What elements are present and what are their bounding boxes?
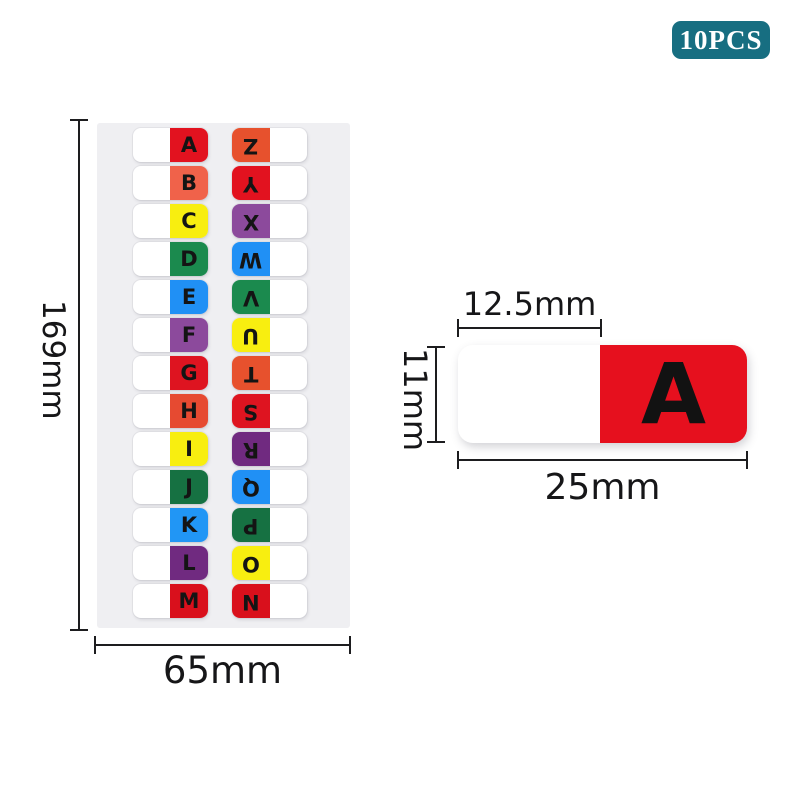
tab-letter: Z — [243, 135, 258, 156]
tab-letter: C — [181, 211, 196, 232]
sheet-row: FU — [97, 318, 350, 352]
tab-colored-half: T — [232, 356, 270, 390]
tab-colored-half: S — [232, 394, 270, 428]
tab-colored-half: K — [170, 508, 208, 542]
tab-sticker-u: U — [232, 318, 307, 352]
sticker-sheet: AZBYCXDWEVFUGTHSIRJQKPLOMN — [97, 123, 350, 628]
tab-letter: U — [242, 325, 259, 346]
sheet-row: KP — [97, 508, 350, 542]
tab-letter: B — [181, 173, 197, 194]
tab-sticker-p: P — [232, 508, 307, 542]
tab-colored-half: A — [600, 345, 747, 443]
tab-letter: N — [242, 591, 260, 612]
sheet-width-label: 65mm — [95, 652, 350, 689]
sheet-row: AZ — [97, 128, 350, 162]
tab-height-dim-line — [435, 347, 437, 442]
tab-letter: Q — [242, 477, 260, 498]
tab-colored-half: R — [232, 432, 270, 466]
tab-letter: I — [185, 439, 193, 460]
tab-letter: E — [182, 287, 196, 308]
tab-sticker-w: W — [232, 242, 307, 276]
tab-sticker-z: Z — [232, 128, 307, 162]
tab-colored-half: P — [232, 508, 270, 542]
sheet-height-dim-line — [78, 120, 80, 630]
tab-sticker-a: A — [133, 128, 208, 162]
tab-letter: M — [179, 591, 200, 612]
tab-sticker-r: R — [232, 432, 307, 466]
sheet-row: EV — [97, 280, 350, 314]
tab-colored-half: X — [232, 204, 270, 238]
tab-sticker-g: G — [133, 356, 208, 390]
tab-letter: V — [243, 287, 259, 308]
tab-colored-half: J — [170, 470, 208, 504]
tab-sticker-m: M — [133, 584, 208, 618]
tab-letter: Y — [243, 173, 258, 194]
sheet-row: BY — [97, 166, 350, 200]
tab-letter: O — [242, 553, 260, 574]
tab-sticker-x: X — [232, 204, 307, 238]
tab-sticker-b: B — [133, 166, 208, 200]
tab-height-label: 11mm — [399, 348, 431, 451]
tab-sticker-s: S — [232, 394, 307, 428]
tab-sticker-q: Q — [232, 470, 307, 504]
tab-letter: L — [182, 553, 195, 574]
tab-detail: A — [458, 345, 747, 443]
product-dimension-diagram: 10PCS AZBYCXDWEVFUGTHSIRJQKPLOMN 169mm 6… — [0, 0, 800, 800]
tab-colored-half: Q — [232, 470, 270, 504]
sheet-row: JQ — [97, 470, 350, 504]
sheet-row: GT — [97, 356, 350, 390]
tab-colored-half: A — [170, 128, 208, 162]
tab-sticker-i: I — [133, 432, 208, 466]
tab-letter: K — [181, 515, 197, 536]
tab-letter: P — [243, 515, 258, 536]
tab-colored-half: E — [170, 280, 208, 314]
tab-sticker-l: L — [133, 546, 208, 580]
sheet-width-dim-line — [95, 644, 350, 646]
tab-colored-half: L — [170, 546, 208, 580]
tab-colored-half: N — [232, 584, 270, 618]
tab-colored-half: U — [232, 318, 270, 352]
tab-sticker-j: J — [133, 470, 208, 504]
tab-sticker-f: F — [133, 318, 208, 352]
tab-sticker-t: T — [232, 356, 307, 390]
sheet-row: IR — [97, 432, 350, 466]
sheet-row: HS — [97, 394, 350, 428]
sheet-row: CX — [97, 204, 350, 238]
tab-colored-half: B — [170, 166, 208, 200]
tab-white-width-dim-line — [458, 327, 601, 329]
tab-colored-half: Z — [232, 128, 270, 162]
sheet-height-label: 169mm — [37, 300, 68, 420]
tab-colored-half: Y — [232, 166, 270, 200]
tab-letter: S — [243, 401, 258, 422]
tab-colored-half: I — [170, 432, 208, 466]
tab-sticker-d: D — [133, 242, 208, 276]
tab-letter: G — [180, 363, 197, 384]
tab-colored-half: F — [170, 318, 208, 352]
tab-total-width-label: 25mm — [458, 470, 747, 506]
tab-colored-half: H — [170, 394, 208, 428]
tab-sticker-h: H — [133, 394, 208, 428]
sheet-row: MN — [97, 584, 350, 618]
tab-letter: A — [181, 135, 197, 156]
tab-letter: H — [180, 401, 198, 422]
tab-sticker-n: N — [232, 584, 307, 618]
tab-white-width-label: 12.5mm — [428, 288, 631, 320]
tab-colored-half: G — [170, 356, 208, 390]
tab-sticker-v: V — [232, 280, 307, 314]
tab-total-width-dim-line — [458, 459, 747, 461]
tab-letter: X — [243, 211, 259, 232]
tab-letter: T — [244, 363, 258, 384]
sheet-row: LO — [97, 546, 350, 580]
tab-colored-half: V — [232, 280, 270, 314]
tab-sticker-y: Y — [232, 166, 307, 200]
sheet-row: DW — [97, 242, 350, 276]
tab-sticker-c: C — [133, 204, 208, 238]
tab-sticker-k: K — [133, 508, 208, 542]
tab-letter: F — [182, 325, 196, 346]
tab-colored-half: D — [170, 242, 208, 276]
tab-letter: D — [180, 249, 197, 270]
tab-sticker-e: E — [133, 280, 208, 314]
quantity-badge: 10PCS — [672, 21, 770, 59]
tab-colored-half: M — [170, 584, 208, 618]
tab-colored-half: C — [170, 204, 208, 238]
tab-colored-half: O — [232, 546, 270, 580]
tab-letter: J — [185, 477, 193, 498]
tab-colored-half: W — [232, 242, 270, 276]
tab-detail-letter: A — [641, 352, 706, 436]
tab-letter: R — [243, 439, 259, 460]
tab-letter: W — [239, 249, 262, 270]
tab-sticker-o: O — [232, 546, 307, 580]
